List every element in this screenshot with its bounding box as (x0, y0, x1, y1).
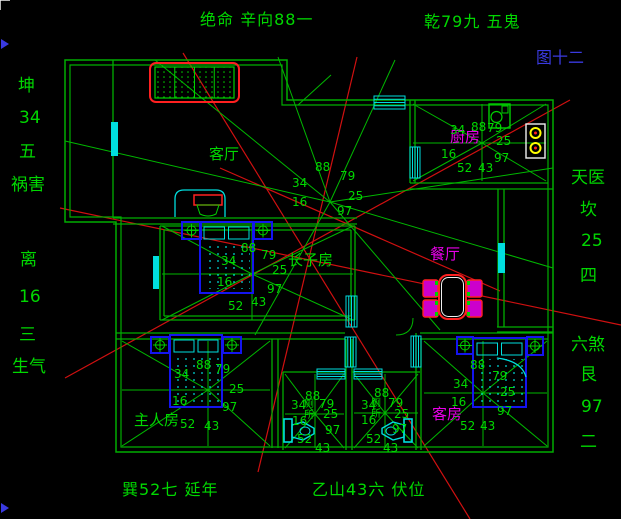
star-number-guest-room: 34 (453, 377, 468, 391)
star-number-eldest-son-room: 88 (241, 241, 256, 255)
chair-accent (435, 312, 438, 316)
annotation-qian-five-ghosts: 乾79九 五鬼 (424, 8, 520, 32)
star-number-kitchen: 79 (487, 121, 502, 135)
star-number-kitchen: 43 (478, 161, 493, 175)
star-number-bath-left: 25 (323, 407, 338, 421)
side-label-left: 16 (19, 287, 41, 307)
star-number-bath-right: 52 (366, 432, 381, 446)
star-number-kitchen: 88 (471, 120, 486, 134)
star-number-master-room: 97 (222, 400, 237, 414)
star-number-house: 88 (315, 160, 330, 174)
side-label-right: 艮 (580, 365, 597, 385)
star-number-eldest-son-room: 34 (221, 254, 236, 268)
star-number-eldest-son-room: 97 (267, 282, 282, 296)
star-number-guest-room: 97 (497, 404, 512, 418)
pillow (477, 343, 498, 355)
star-number-master-room: 16 (172, 394, 187, 408)
star-number-bath-left: 43 (315, 441, 330, 455)
star-number-bath-right: 88 (374, 386, 389, 400)
pillow (502, 343, 523, 355)
side-label-left: 离 (20, 250, 37, 270)
star-number-eldest-son-room: 16 (217, 275, 232, 289)
side-label-left: 三 (19, 325, 36, 345)
room-label-master-room: 主人房 (134, 411, 179, 429)
star-number-guest-room: 88 (470, 358, 485, 372)
tv-bowl (197, 205, 219, 216)
star-ray-house (330, 168, 553, 202)
stove-burner-knob (534, 147, 537, 150)
side-label-right: 二 (580, 432, 597, 452)
room-label-eldest-son-room: 长子房 (288, 251, 333, 269)
chair-accent (467, 312, 470, 316)
star-number-master-room: 43 (204, 419, 219, 433)
star-ray-house (65, 141, 330, 202)
star-number-eldest-son-room: 43 (251, 295, 266, 309)
side-label-left: 坤 (18, 76, 35, 96)
star-number-house: 97 (337, 204, 352, 218)
star-number-kitchen: 52 (457, 161, 472, 175)
star-number-bath-right: 97 (392, 422, 407, 436)
side-label-left: 生气 (12, 357, 46, 377)
screen-edge-mark (1, 39, 9, 49)
star-number-bath-left: 97 (325, 423, 340, 437)
side-label-right: 六煞 (571, 335, 605, 355)
side-label-left: 34 (19, 108, 41, 128)
chair-accent (467, 292, 470, 296)
star-number-guest-room: 79 (492, 369, 507, 383)
star-number-bath-left: 16 (292, 414, 307, 428)
floorplan-drawing: 坤34五祸害离16三生气天医坎25四六煞艮97二客厅厨房餐厅长子房主人房客房厕所… (0, 0, 621, 519)
room-label-living-room: 客厅 (209, 145, 239, 163)
side-label-left: 五 (19, 142, 36, 162)
star-number-guest-room: 25 (500, 385, 515, 399)
tv-screen (194, 195, 222, 205)
star-number-bath-right: 34 (361, 398, 376, 412)
red-direction-line (65, 100, 570, 378)
screen-corner-mark (0, 0, 10, 10)
side-label-right: 97 (581, 397, 603, 417)
star-number-guest-room: 16 (451, 395, 466, 409)
star-number-bath-left: 52 (297, 432, 312, 446)
side-label-right: 四 (580, 266, 597, 286)
star-number-kitchen: 16 (441, 147, 456, 161)
pillow (229, 227, 250, 239)
dining-table (439, 275, 466, 319)
room-label-dining-room: 餐厅 (430, 245, 460, 263)
star-number-house: 25 (348, 189, 363, 203)
star-number-house: 16 (292, 195, 307, 209)
side-label-right: 25 (581, 231, 603, 251)
annotation-facing-direction: 绝命 辛向88一 (200, 6, 313, 30)
side-label-right: 坎 (580, 200, 597, 220)
annotation-sitting-mountain: 乙山43六 伏位 (312, 476, 425, 500)
star-number-kitchen: 97 (494, 151, 509, 165)
screen-edge-mark (1, 503, 9, 513)
star-number-eldest-son-room: 25 (272, 263, 287, 277)
star-number-bath-left: 88 (305, 389, 320, 403)
star-number-bath-right: 16 (361, 413, 376, 427)
star-number-bath-left: 34 (291, 398, 306, 412)
star-number-master-room: 79 (215, 362, 230, 376)
side-label-left: 祸害 (11, 175, 45, 195)
toilet-tank (284, 419, 292, 442)
floorplan-canvas: 坤34五祸害离16三生气天医坎25四六煞艮97二客厅厨房餐厅长子房主人房客房厕所… (0, 0, 621, 519)
star-number-house: 34 (292, 176, 307, 190)
chair-accent (435, 301, 438, 305)
door-swing-arc (396, 318, 413, 335)
side-label-right: 天医 (571, 168, 605, 188)
window (498, 243, 505, 273)
star-number-master-room: 34 (174, 367, 189, 381)
sink-faucet (502, 106, 508, 113)
star-number-eldest-son-room: 52 (228, 299, 243, 313)
star-number-master-room: 88 (196, 358, 211, 372)
star-number-guest-room: 43 (480, 419, 495, 433)
chair-accent (467, 301, 470, 305)
figure-number-label: 图十二 (536, 44, 584, 68)
star-number-bath-right: 25 (394, 407, 409, 421)
window (153, 256, 159, 289)
stove-burner-knob (534, 132, 537, 135)
chair-accent (467, 281, 470, 285)
chair-accent (435, 292, 438, 296)
star-number-bath-right: 43 (383, 441, 398, 455)
star-number-house: 79 (340, 169, 355, 183)
window (111, 122, 118, 156)
chair-accent (435, 281, 438, 285)
star-number-kitchen: 25 (496, 134, 511, 148)
pillow (174, 340, 194, 352)
pillow (204, 227, 225, 239)
annotation-xun-yannian: 巽52七 延年 (122, 476, 218, 500)
star-number-guest-room: 52 (460, 419, 475, 433)
star-number-eldest-son-room: 79 (261, 248, 276, 262)
star-number-kitchen: 34 (450, 123, 465, 137)
star-number-master-room: 25 (229, 382, 244, 396)
star-number-master-room: 52 (180, 417, 195, 431)
